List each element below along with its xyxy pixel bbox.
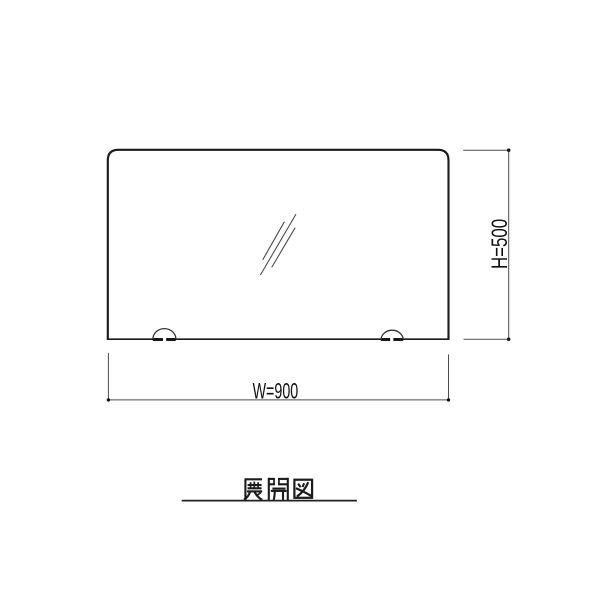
svg-text:W=900: W=900: [253, 379, 299, 404]
svg-text:H=500: H=500: [487, 219, 512, 269]
